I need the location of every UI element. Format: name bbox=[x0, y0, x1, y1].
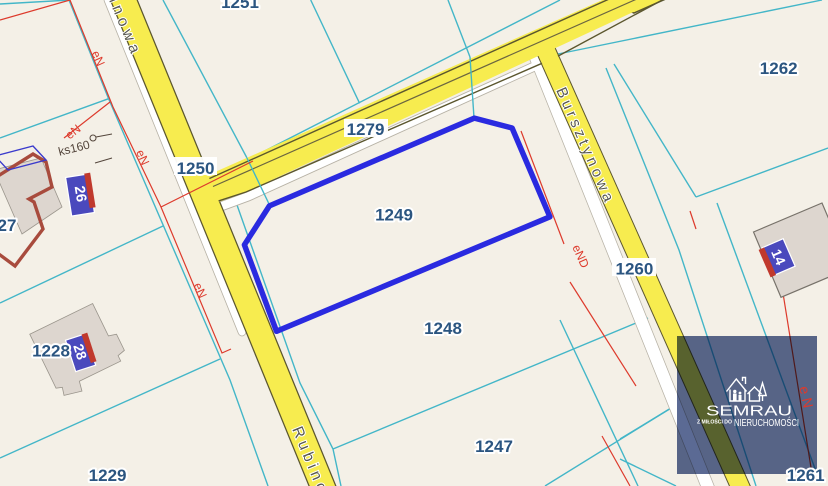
svg-text:SEMRAU: SEMRAU bbox=[706, 403, 792, 420]
svg-text:Z MIŁOŚCI DO: Z MIŁOŚCI DO bbox=[697, 419, 733, 426]
svg-text:1262: 1262 bbox=[760, 59, 798, 78]
svg-text:1248: 1248 bbox=[424, 319, 462, 338]
svg-text:1228: 1228 bbox=[32, 342, 70, 361]
svg-text:1250: 1250 bbox=[177, 159, 215, 178]
svg-text:1247: 1247 bbox=[475, 437, 513, 456]
svg-text:1261: 1261 bbox=[787, 466, 825, 485]
svg-text:1249: 1249 bbox=[375, 206, 413, 225]
svg-text:NIERUCHOMOŚCI: NIERUCHOMOŚCI bbox=[734, 416, 799, 429]
svg-text:26: 26 bbox=[71, 185, 89, 203]
svg-text:1229: 1229 bbox=[89, 466, 127, 485]
svg-text:27: 27 bbox=[0, 216, 16, 235]
svg-text:1260: 1260 bbox=[615, 260, 653, 279]
svg-text:1279: 1279 bbox=[347, 120, 385, 139]
svg-text:1251: 1251 bbox=[221, 0, 259, 12]
